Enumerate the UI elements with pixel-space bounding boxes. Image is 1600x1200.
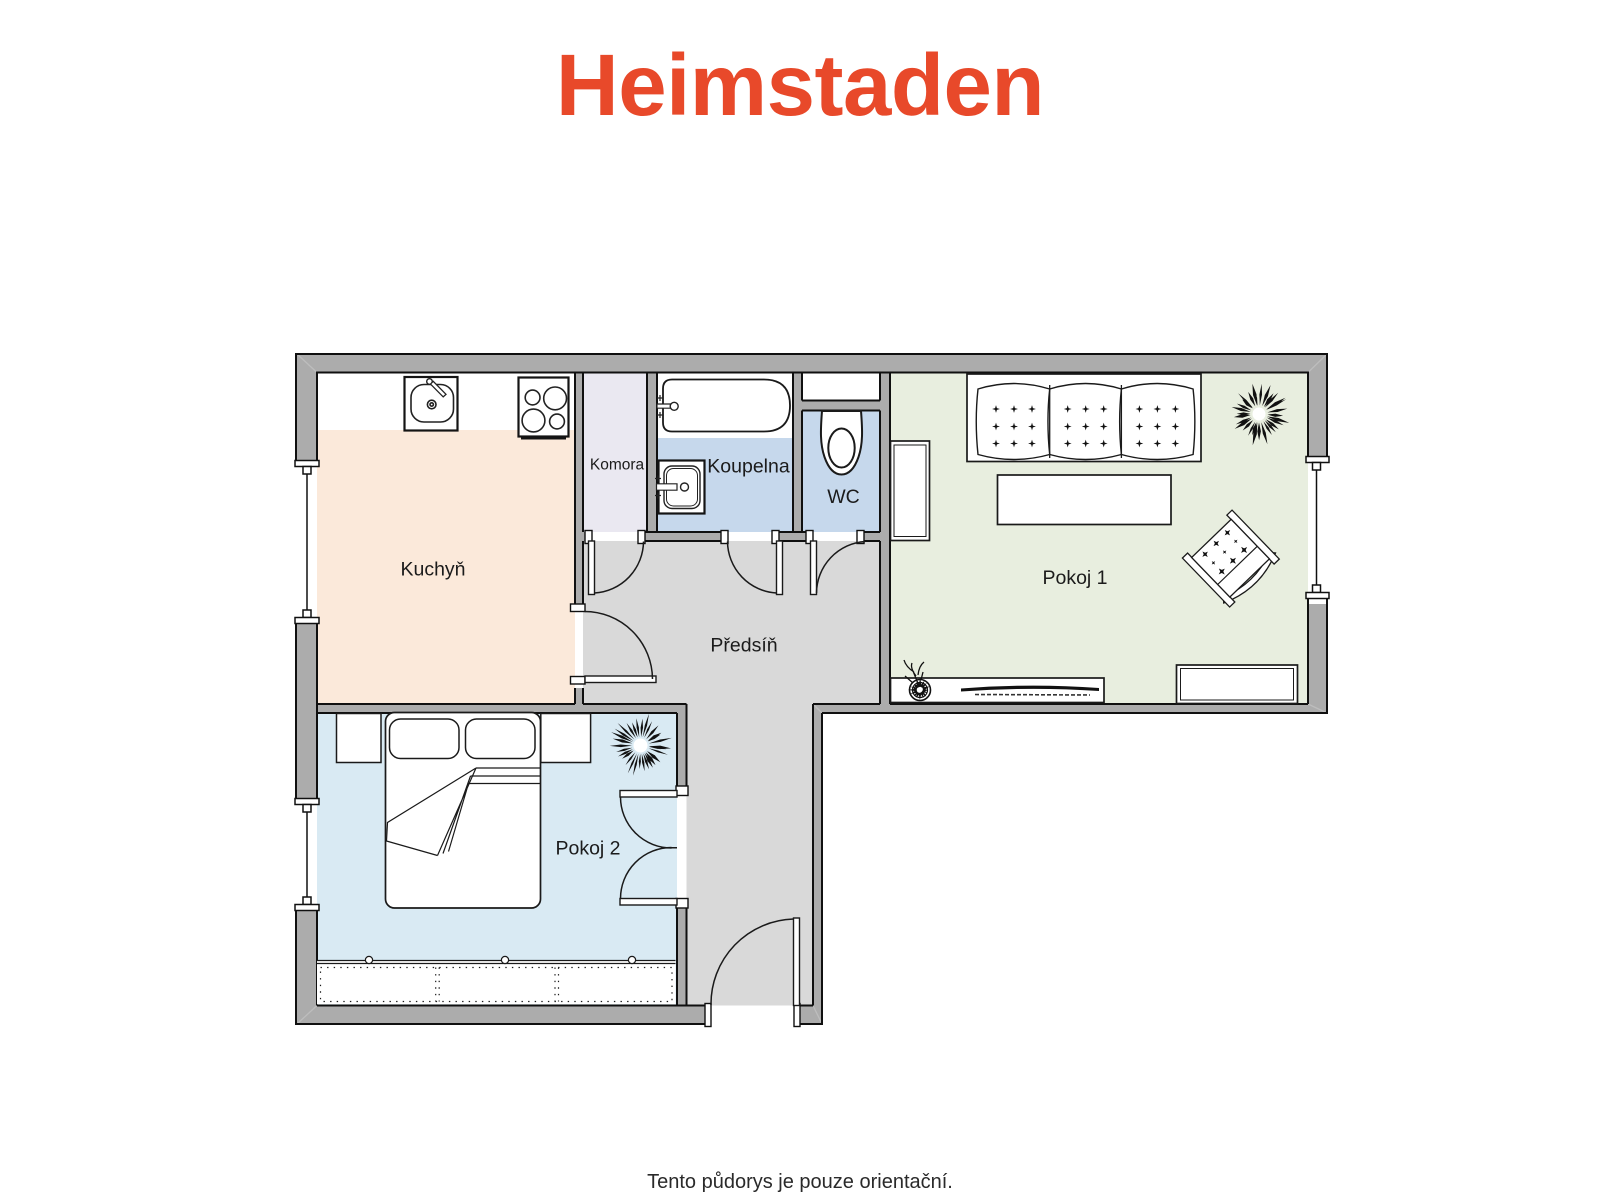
svg-text:Kuchyň: Kuchyň <box>400 559 465 581</box>
svg-text:Pokoj 2: Pokoj 2 <box>555 838 620 860</box>
svg-text:Předsíň: Předsíň <box>710 635 777 657</box>
svg-text:WC: WC <box>827 486 860 508</box>
svg-text:Koupelna: Koupelna <box>707 456 790 478</box>
svg-text:Pokoj 1: Pokoj 1 <box>1042 567 1107 589</box>
svg-text:Komora: Komora <box>590 457 645 474</box>
